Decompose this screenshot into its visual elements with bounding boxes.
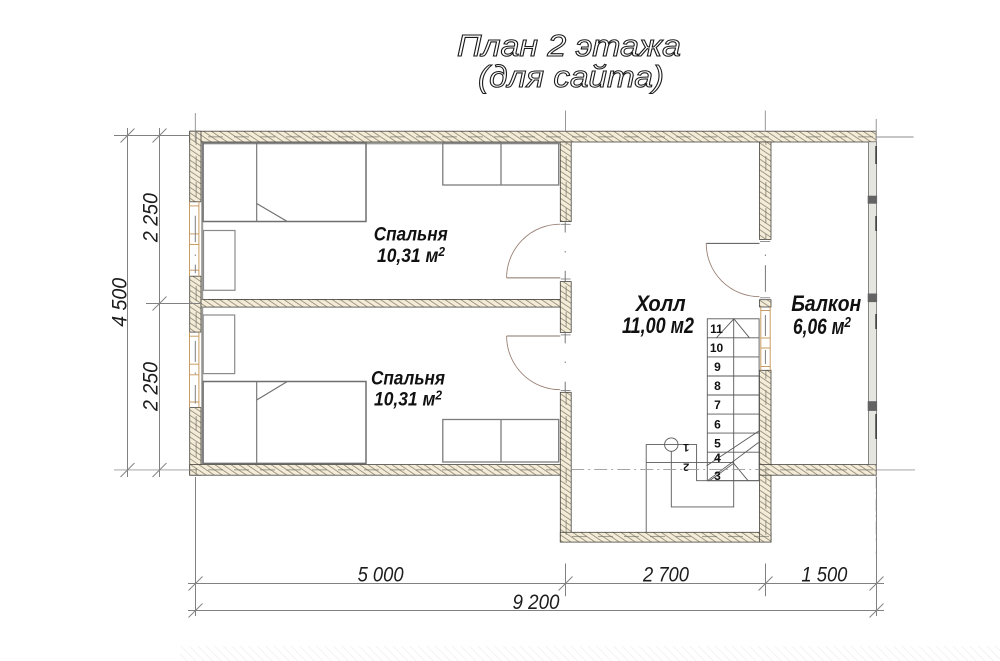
svg-text:11,00 м2: 11,00 м2 [622,313,695,338]
svg-text:Спальня: Спальня [371,368,445,389]
svg-text:3: 3 [714,469,721,483]
svg-text:(для сайта): (для сайта) [478,59,664,94]
svg-text:Спальня: Спальня [374,225,448,246]
svg-text:9: 9 [714,360,721,374]
svg-text:1 500: 1 500 [801,564,847,587]
svg-text:1: 1 [683,441,689,453]
svg-text:9 200: 9 200 [513,591,560,614]
svg-text:8: 8 [714,379,721,393]
svg-text:11: 11 [710,322,723,336]
svg-text:10,31 м2: 10,31 м2 [374,388,443,411]
svg-text:План 2 этажа: План 2 этажа [457,28,681,63]
svg-text:5 000: 5 000 [358,564,404,587]
svg-text:5: 5 [714,436,721,450]
svg-text:10: 10 [710,341,724,355]
svg-text:4: 4 [714,451,721,465]
svg-text:Балкон: Балкон [791,291,861,316]
svg-text:4 500: 4 500 [109,278,132,327]
svg-text:2 250: 2 250 [139,362,162,412]
svg-text:2 250: 2 250 [139,193,162,243]
svg-text:2 700: 2 700 [642,564,689,587]
svg-text:6,06 м2: 6,06 м2 [793,314,852,339]
svg-text:6: 6 [714,417,721,431]
svg-text:2: 2 [683,460,689,472]
svg-text:10,31 м2: 10,31 м2 [377,244,446,267]
svg-text:7: 7 [714,398,721,412]
